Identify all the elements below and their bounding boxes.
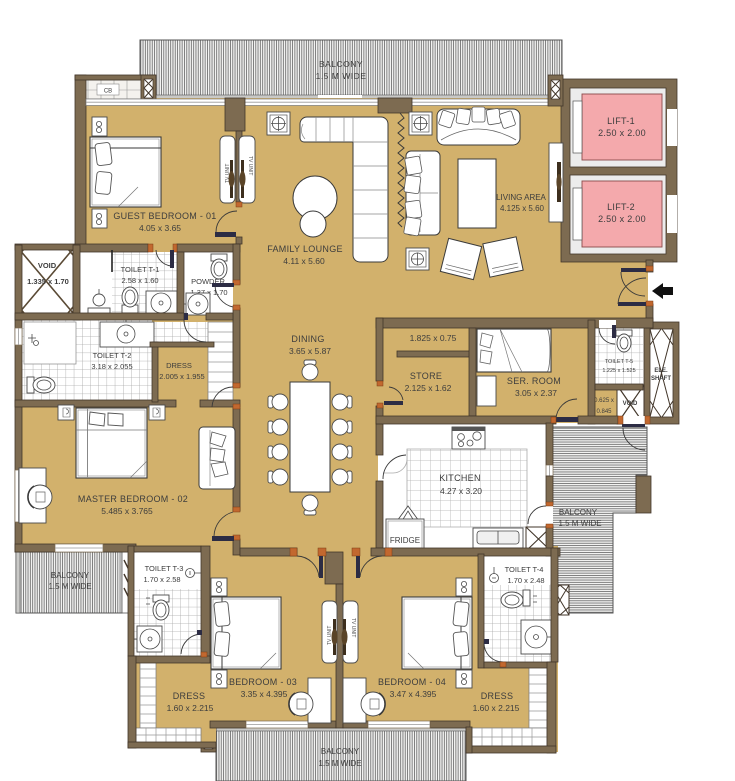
svg-text:LIFT-1: LIFT-1 xyxy=(607,116,635,126)
svg-text:ELE.: ELE. xyxy=(654,368,668,374)
svg-text:BALCONY: BALCONY xyxy=(51,571,90,580)
svg-text:0.845: 0.845 xyxy=(596,409,612,415)
svg-text:VOID: VOID xyxy=(623,401,638,407)
svg-text:TOILET T-5: TOILET T-5 xyxy=(605,359,633,365)
svg-text:1.335 x 1.70: 1.335 x 1.70 xyxy=(27,277,69,286)
svg-text:SER. ROOM: SER. ROOM xyxy=(507,376,561,386)
svg-text:SHAFT: SHAFT xyxy=(651,376,671,382)
svg-text:2.58 x 1.60: 2.58 x 1.60 xyxy=(121,276,158,285)
svg-text:1.60 x 2.215: 1.60 x 2.215 xyxy=(167,703,214,713)
svg-text:DRESS: DRESS xyxy=(481,691,514,701)
svg-text:BALCONY: BALCONY xyxy=(319,59,363,69)
svg-text:CB: CB xyxy=(104,89,112,95)
svg-text:TOILET T-3: TOILET T-3 xyxy=(145,564,184,573)
svg-text:3.18 x 2.055: 3.18 x 2.055 xyxy=(91,362,132,371)
svg-text:DRESS: DRESS xyxy=(166,361,192,370)
svg-text:LIVING AREA: LIVING AREA xyxy=(496,193,546,202)
svg-text:LIFT-2: LIFT-2 xyxy=(607,202,635,212)
svg-text:2.125 x 1.62: 2.125 x 1.62 xyxy=(405,383,452,393)
svg-text:0.625 x: 0.625 x xyxy=(594,398,614,404)
svg-text:1.60 x 2.215: 1.60 x 2.215 xyxy=(473,703,520,713)
svg-text:1.5 M WIDE: 1.5 M WIDE xyxy=(316,71,367,81)
svg-text:3.65 x 5.87: 3.65 x 5.87 xyxy=(289,346,331,356)
svg-text:FRIDGE: FRIDGE xyxy=(390,536,420,545)
svg-text:STORE: STORE xyxy=(410,371,442,381)
svg-text:TOILET T-1: TOILET T-1 xyxy=(121,265,160,274)
svg-text:MASTER BEDROOM - 02: MASTER BEDROOM - 02 xyxy=(78,494,188,504)
svg-text:2.50 x 2.00: 2.50 x 2.00 xyxy=(598,214,646,224)
svg-text:1.825 x 0.75: 1.825 x 0.75 xyxy=(410,333,457,343)
svg-text:5.485 x 3.765: 5.485 x 3.765 xyxy=(101,506,153,516)
svg-text:1.5 M WIDE: 1.5 M WIDE xyxy=(558,519,601,528)
svg-text:BALCONY: BALCONY xyxy=(321,747,360,756)
svg-text:TOILET T-2: TOILET T-2 xyxy=(93,351,132,360)
svg-text:1.225 x 1.525: 1.225 x 1.525 xyxy=(602,368,635,374)
svg-text:BEDROOM - 03: BEDROOM - 03 xyxy=(229,677,297,687)
svg-text:BEDROOM - 04: BEDROOM - 04 xyxy=(378,677,446,687)
svg-text:4.05 x 3.65: 4.05 x 3.65 xyxy=(139,223,181,233)
svg-text:DRESS: DRESS xyxy=(173,691,206,701)
svg-text:1.70 x 2.48: 1.70 x 2.48 xyxy=(507,576,544,585)
svg-text:3.05 x 2.37: 3.05 x 2.37 xyxy=(515,388,557,398)
svg-text:KITCHEN: KITCHEN xyxy=(439,473,481,483)
svg-text:TV UNIT: TV UNIT xyxy=(350,618,356,637)
svg-text:GUEST BEDROOM - 01: GUEST BEDROOM - 01 xyxy=(113,211,216,221)
svg-text:1.70 x 2.58: 1.70 x 2.58 xyxy=(143,575,180,584)
svg-text:TOILET T-4: TOILET T-4 xyxy=(505,565,544,574)
svg-text:3.35 x 4.395: 3.35 x 4.395 xyxy=(241,689,288,699)
svg-text:VOID: VOID xyxy=(38,261,57,270)
svg-text:FAMILY LOUNGE: FAMILY LOUNGE xyxy=(267,244,343,254)
svg-text:3.47 x 4.395: 3.47 x 4.395 xyxy=(390,689,437,699)
svg-text:TV UNIT: TV UNIT xyxy=(247,156,253,175)
svg-text:DINING: DINING xyxy=(291,334,324,344)
svg-text:4.27 x 3.20: 4.27 x 3.20 xyxy=(440,486,482,496)
svg-text:1.5 M WIDE: 1.5 M WIDE xyxy=(318,759,361,768)
svg-text:BALCONY: BALCONY xyxy=(559,508,598,517)
svg-text:4.125 x 5.60: 4.125 x 5.60 xyxy=(500,204,545,213)
svg-text:1.5 M WIDE: 1.5 M WIDE xyxy=(48,582,91,591)
svg-text:2.005 x 1.955: 2.005 x 1.955 xyxy=(159,372,204,381)
svg-text:4.11 x 5.60: 4.11 x 5.60 xyxy=(283,256,325,266)
svg-text:2.50 x 2.00: 2.50 x 2.00 xyxy=(598,128,646,138)
